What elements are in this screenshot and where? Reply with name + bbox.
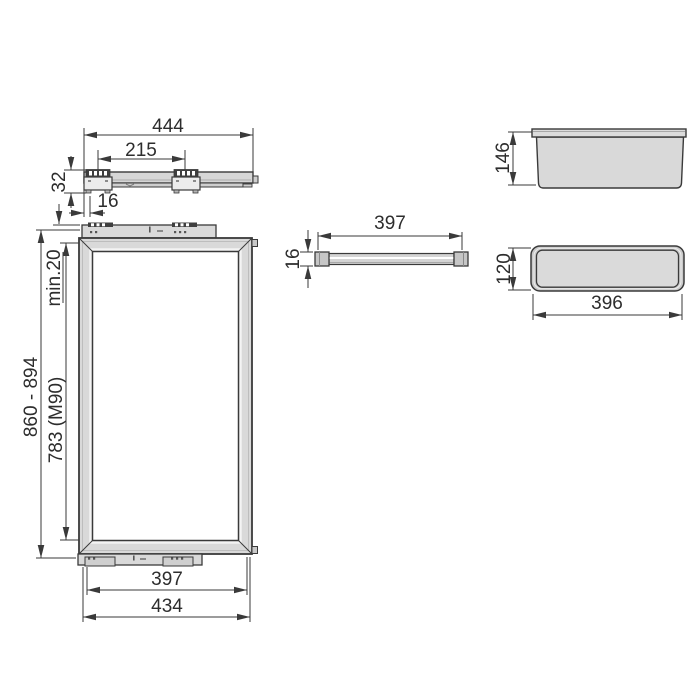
basket-top-view: 120 396 xyxy=(494,246,684,320)
dim-text-end-offset: 16 xyxy=(97,191,118,212)
rail-bracket-left xyxy=(84,170,112,194)
frame-top-rail xyxy=(82,223,216,239)
dim-text-basket-height: 146 xyxy=(493,142,514,174)
dim-text-frame-outer-width: 434 xyxy=(151,596,183,617)
dim-text-min-clearance: min.20 xyxy=(44,249,65,306)
dim-text-rail-height: 32 xyxy=(49,171,70,192)
crossbar-front-view: 397 16 xyxy=(283,213,468,288)
rail-lip-step xyxy=(243,184,252,187)
crossbar-body xyxy=(315,252,468,266)
dim-text-bar-length: 397 xyxy=(374,213,406,234)
dim-text-frame-height: 783 (M90) xyxy=(46,377,67,464)
frame-front-view: 860 - 894 783 (M90) min.20 397 434 xyxy=(21,204,258,622)
frame-tab-top-right xyxy=(252,240,258,247)
technical-drawing-page: 444 215 32 16 xyxy=(0,0,700,700)
dim-text-frame-inner-width: 397 xyxy=(151,569,183,590)
crossbar-end-cap-right xyxy=(454,252,468,266)
basket-top-body xyxy=(531,246,684,291)
technical-drawing: 444 215 32 16 xyxy=(0,0,700,700)
dim-text-basket-width: 396 xyxy=(591,293,623,314)
rail-end-tab xyxy=(253,176,258,183)
basket-side-view: 146 xyxy=(493,129,686,188)
rail-side-view: 444 215 32 16 xyxy=(49,116,258,217)
frame-tab-bottom-right xyxy=(252,547,258,554)
crossbar-end-cap-left xyxy=(315,252,329,266)
rail-bracket-right xyxy=(172,170,200,194)
dim-text-bar-thickness: 16 xyxy=(283,248,304,269)
frame-body xyxy=(79,238,258,554)
dim-text-bracket-spacing: 215 xyxy=(125,140,157,161)
dim-text-rail-length: 444 xyxy=(152,116,184,137)
basket-rim xyxy=(532,129,686,137)
basket-side-body xyxy=(532,129,686,188)
dim-text-basket-depth: 120 xyxy=(494,253,515,285)
frame-bottom-rail xyxy=(78,554,202,566)
dim-text-total-height: 860 - 894 xyxy=(21,356,42,437)
